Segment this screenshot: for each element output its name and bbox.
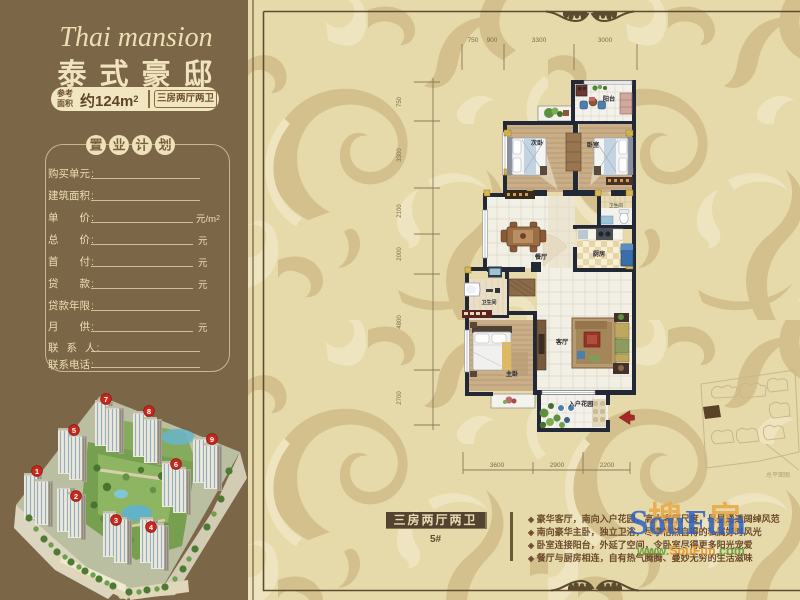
svg-text:餐厅: 餐厅 — [535, 253, 548, 261]
svg-text:750: 750 — [468, 37, 479, 44]
svg-text:4800: 4800 — [397, 315, 403, 329]
svg-text:750: 750 — [397, 96, 403, 107]
svg-text:3: 3 — [114, 516, 118, 525]
svg-text:阳台: 阳台 — [603, 95, 615, 103]
svg-text:6: 6 — [174, 460, 178, 469]
svg-text:7: 7 — [104, 395, 108, 404]
svg-text:9: 9 — [210, 435, 214, 444]
svg-text:卧室: 卧室 — [587, 141, 599, 149]
svg-text:3300: 3300 — [532, 37, 547, 44]
svg-text:900: 900 — [487, 37, 498, 44]
svg-text:8: 8 — [147, 407, 151, 416]
svg-text:2000: 2000 — [397, 247, 403, 261]
svg-text:卫生间: 卫生间 — [481, 299, 496, 306]
svg-text:2: 2 — [74, 492, 78, 501]
svg-text:入户花园: 入户花园 — [568, 400, 594, 408]
svg-text:2700: 2700 — [397, 391, 403, 405]
svg-text:2200: 2200 — [600, 462, 615, 469]
svg-text:总平面图: 总平面图 — [766, 471, 790, 479]
svg-text:卫生间: 卫生间 — [609, 202, 623, 209]
svg-text:3000: 3000 — [598, 37, 613, 44]
svg-text:1: 1 — [35, 467, 39, 476]
svg-text:客厅: 客厅 — [555, 338, 569, 346]
svg-text:次卧: 次卧 — [531, 139, 544, 147]
svg-text:3300: 3300 — [397, 148, 403, 162]
svg-text:5: 5 — [72, 426, 76, 435]
svg-text:3600: 3600 — [490, 462, 505, 469]
svg-text:厨房: 厨房 — [593, 250, 605, 258]
svg-text:2100: 2100 — [397, 204, 403, 218]
svg-text:主卧: 主卧 — [506, 370, 519, 378]
svg-text:2900: 2900 — [550, 462, 565, 469]
